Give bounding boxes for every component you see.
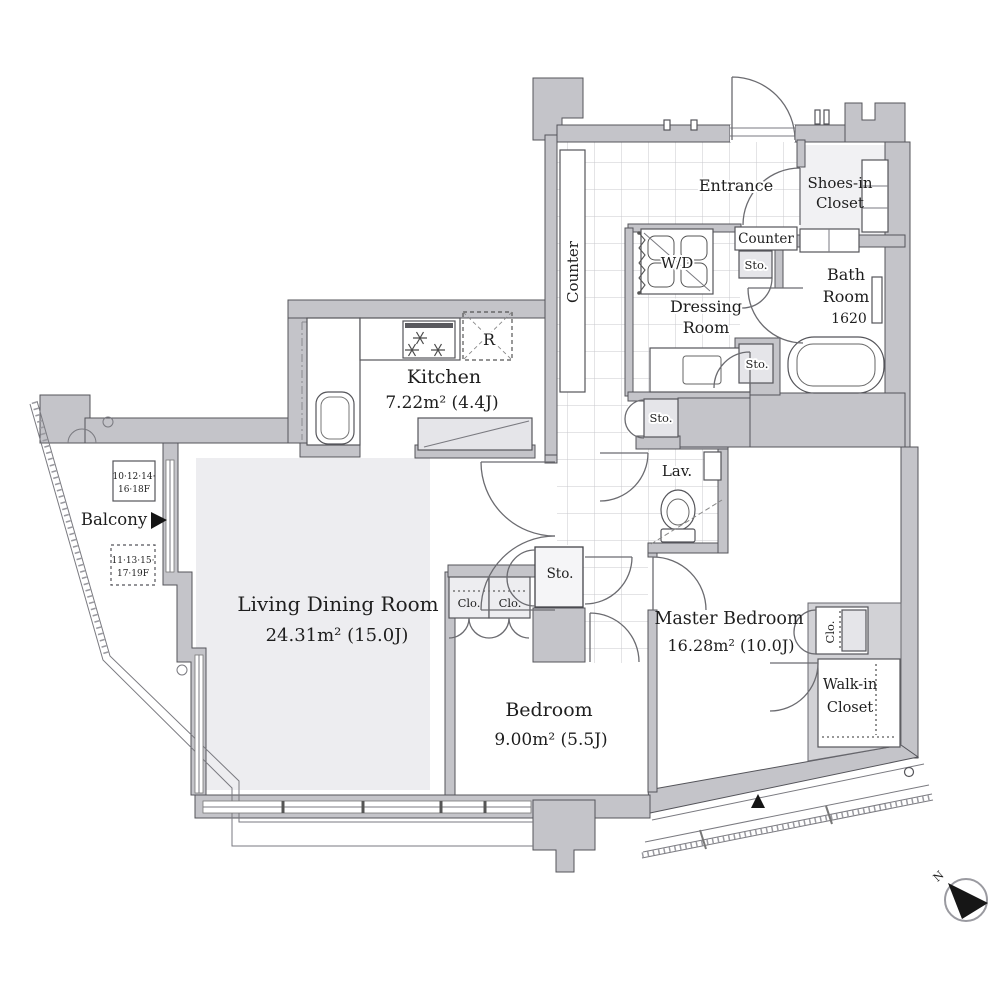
- entrance-counter-label: Counter: [738, 231, 794, 247]
- walk-in-closet-label-line1: Walk-in: [823, 677, 877, 693]
- floor-plan-page: 10·12·14· 16·18F 11·13·15· 17·19F N Livi…: [0, 0, 1000, 1000]
- shoes-closet-label-line2: Closet: [816, 194, 864, 212]
- storage-label: Sto.: [745, 258, 768, 272]
- master-bedroom-area: 16.28m² (10.0J): [668, 636, 795, 655]
- bath-shelf: [872, 277, 882, 323]
- closet-label: Clo.: [499, 596, 522, 610]
- floor-level-box-dashed: 11·13·15· 17·19F: [111, 545, 155, 585]
- kitchen-area: 7.22m² (4.4J): [385, 393, 498, 413]
- shoes-closet-label-line1: Shoes-in: [807, 174, 872, 192]
- closet-label: Clo.: [823, 621, 837, 644]
- bath-room-label-line1: Bath: [827, 265, 865, 284]
- dressing-room-label-line1: Dressing: [670, 297, 742, 316]
- floor-box-line2: 17·19F: [117, 569, 149, 579]
- bath-room-size: 1620: [831, 311, 867, 327]
- corridor-counter-label: Counter: [564, 240, 582, 303]
- floor-plan: 10·12·14· 16·18F 11·13·15· 17·19F N Livi…: [0, 0, 1000, 1000]
- storage-label: Sto.: [746, 357, 769, 371]
- refrigerator-label: R: [483, 330, 496, 349]
- washer-dryer-label: W/D: [661, 254, 694, 272]
- bath-room-label-line2: Room: [823, 287, 869, 306]
- kitchen-sink: [316, 392, 354, 444]
- living-window-band: [203, 801, 531, 813]
- lav-label: Lav.: [662, 462, 692, 480]
- balcony-label: Balcony: [81, 510, 148, 529]
- floor-level-box-solid: 10·12·14· 16·18F: [113, 461, 156, 501]
- walk-in-closet-label-line2: Closet: [827, 700, 873, 716]
- kitchen-label: Kitchen: [407, 366, 481, 388]
- living-floor-shade: [196, 458, 430, 790]
- dressing-room-label-line2: Room: [683, 318, 729, 337]
- compass-icon: N: [931, 868, 988, 921]
- direction-triangle-marker: [751, 794, 765, 808]
- closet-label: Clo.: [458, 596, 481, 610]
- master-bedroom-label: Master Bedroom: [654, 609, 804, 629]
- bathtub: [788, 337, 884, 393]
- floor-box-line2: 16·18F: [118, 485, 150, 495]
- floor-box-line1: 10·12·14·: [113, 472, 156, 482]
- living-room-label: Living Dining Room: [237, 592, 438, 616]
- floor-box-line1: 11·13·15·: [112, 556, 155, 566]
- living-room-area: 24.31m² (15.0J): [266, 625, 409, 646]
- bedroom-label: Bedroom: [505, 699, 592, 721]
- bedroom-area: 9.00m² (5.5J): [494, 730, 607, 750]
- storage-label: Sto.: [650, 411, 673, 425]
- storage-label: Sto.: [547, 566, 574, 582]
- entrance-label: Entrance: [699, 176, 773, 195]
- lav-cabinet: [704, 452, 721, 480]
- north-label: N: [931, 868, 947, 884]
